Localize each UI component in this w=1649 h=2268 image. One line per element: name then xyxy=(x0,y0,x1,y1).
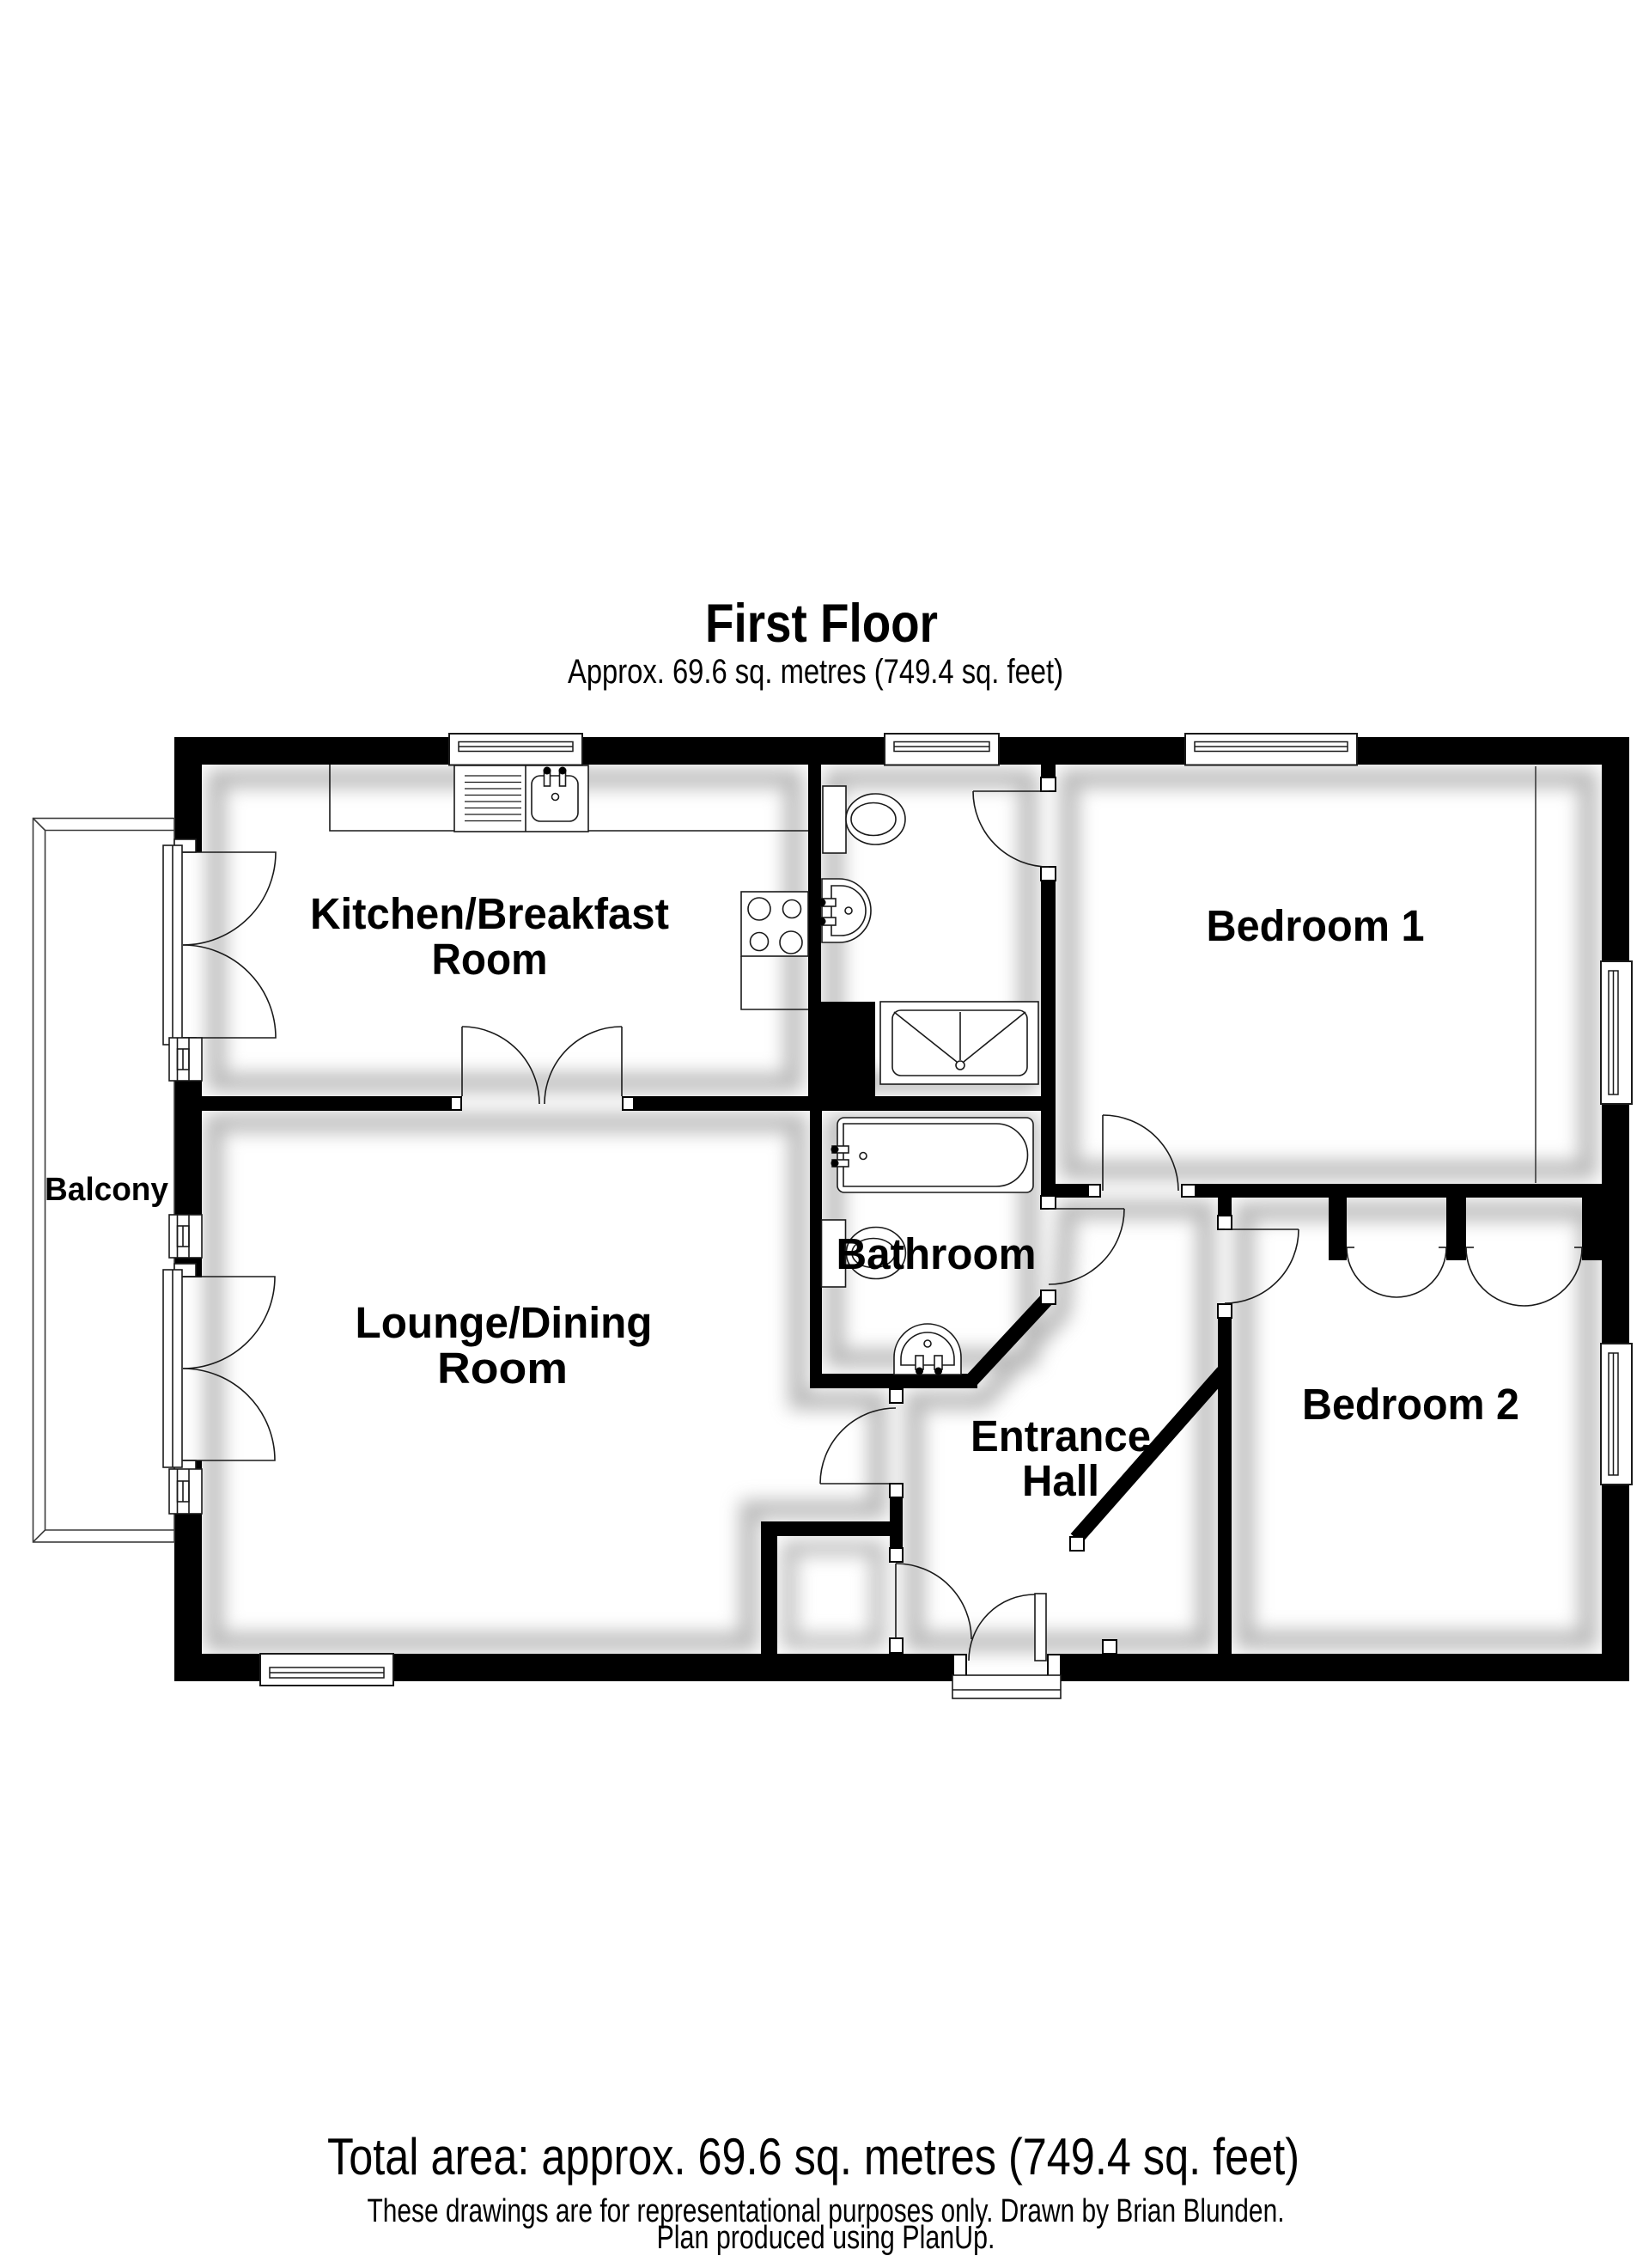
svg-text:First Floor: First Floor xyxy=(705,594,938,654)
svg-text:Bedroom 2: Bedroom 2 xyxy=(1302,1380,1519,1429)
svg-text:Room: Room xyxy=(432,935,548,984)
svg-text:Approx. 69.6 sq. metres (749.4: Approx. 69.6 sq. metres (749.4 sq. feet) xyxy=(568,653,1063,691)
svg-text:Balcony: Balcony xyxy=(45,1172,168,1208)
svg-text:Lounge/Dining: Lounge/Dining xyxy=(356,1298,653,1347)
svg-text:Total area: approx. 69.6 sq. m: Total area: approx. 69.6 sq. metres (749… xyxy=(327,2128,1299,2186)
svg-text:Bedroom 1: Bedroom 1 xyxy=(1207,901,1425,950)
svg-text:Entrance: Entrance xyxy=(971,1411,1151,1460)
svg-text:Kitchen/Breakfast: Kitchen/Breakfast xyxy=(310,889,669,938)
svg-text:Plan produced using PlanUp.: Plan produced using PlanUp. xyxy=(657,2220,995,2256)
svg-text:Bathroom: Bathroom xyxy=(837,1229,1037,1278)
svg-text:Hall: Hall xyxy=(1022,1456,1099,1505)
svg-text:Room: Room xyxy=(437,1344,568,1393)
